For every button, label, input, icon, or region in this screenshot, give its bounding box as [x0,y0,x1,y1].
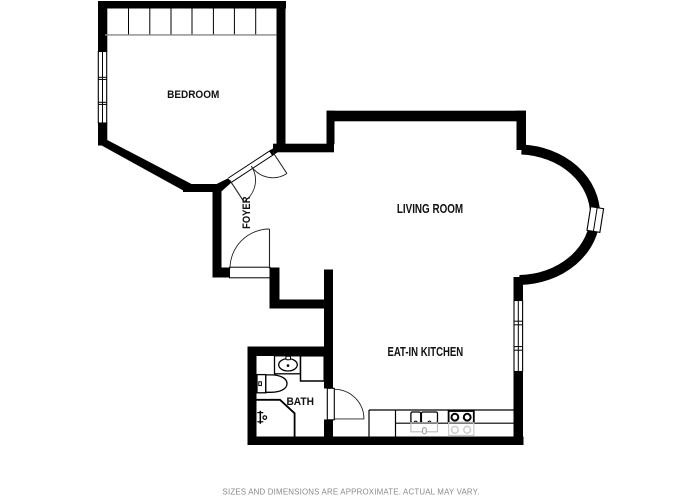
svg-text:BEDROOM: BEDROOM [167,88,219,101]
svg-text:BATH: BATH [286,397,313,408]
svg-text:SIZES AND DIMENSIONS ARE APPRO: SIZES AND DIMENSIONS ARE APPROXIMATE. AC… [223,487,480,496]
svg-text:FOYER: FOYER [241,196,253,229]
svg-text:LIVING ROOM: LIVING ROOM [397,203,463,216]
svg-text:EAT-IN KITCHEN: EAT-IN KITCHEN [387,346,463,360]
